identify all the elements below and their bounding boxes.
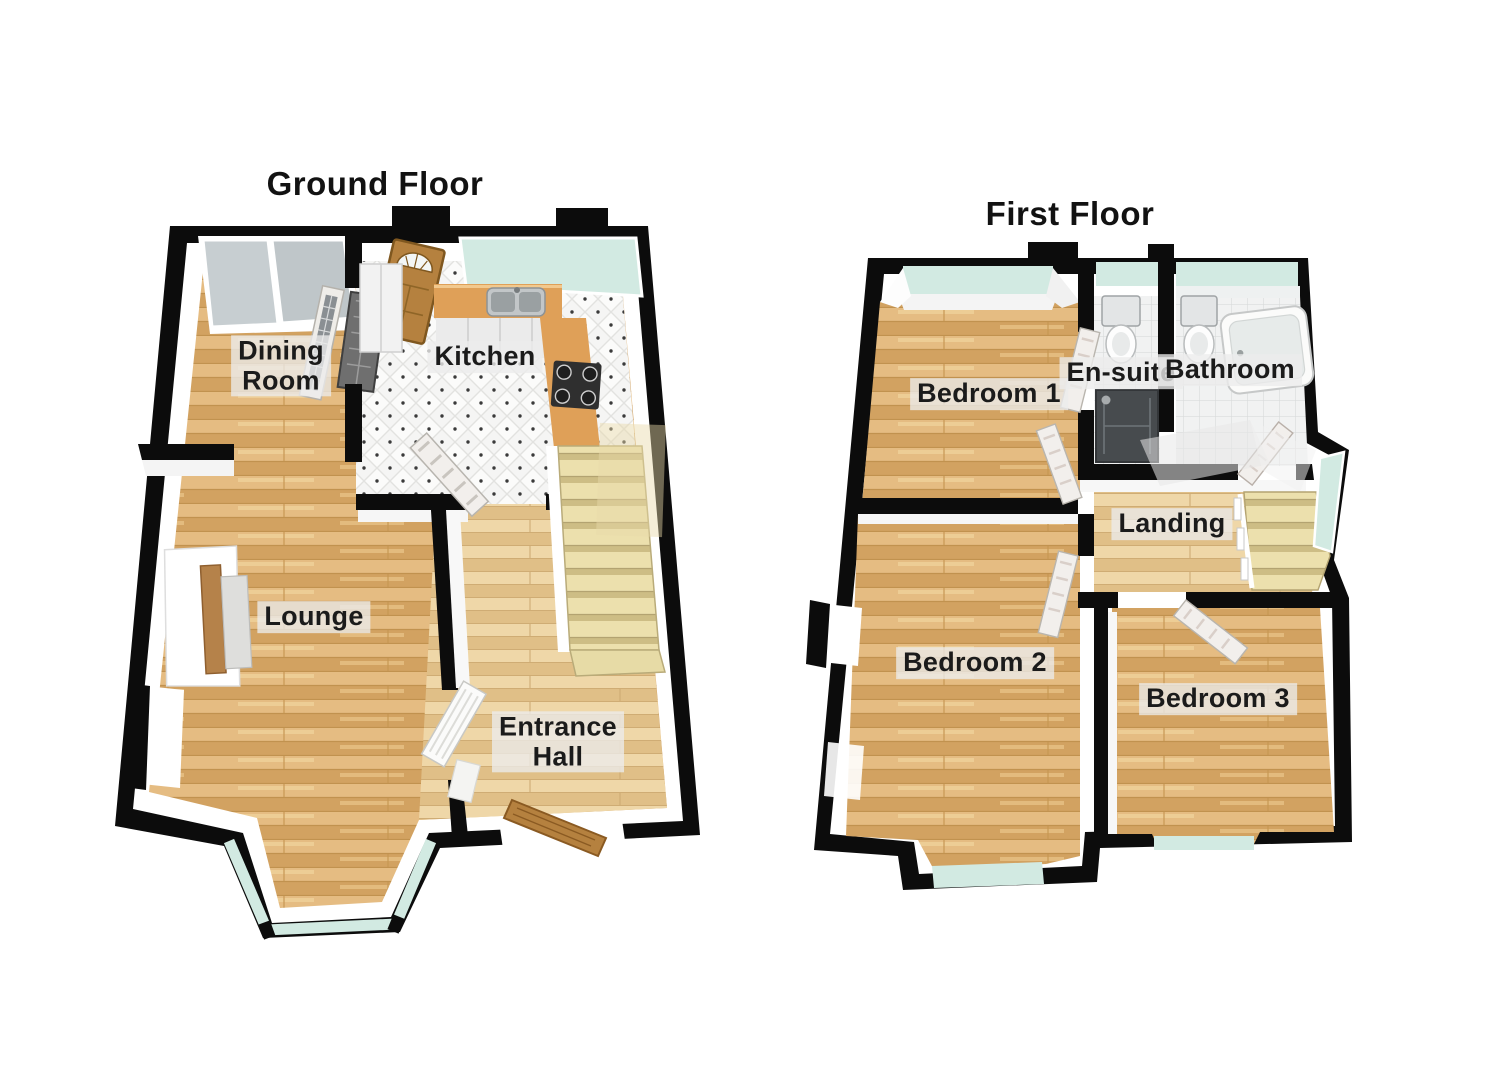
ground-floor-plan [115,206,700,940]
bedroom3-window [1154,836,1254,850]
bedroom2-bedroom3-wall-face [1108,612,1117,834]
stairs-upper-ghost [596,423,666,537]
room-label-bedroom1: Bedroom 1 [910,378,1068,410]
baluster [1234,498,1241,520]
bedroom2-landing-wall [1078,514,1094,556]
room-label-landing: Landing [1111,508,1232,540]
dining-lounge-wall-stub [138,444,234,460]
patio-window-pane [272,240,354,323]
bedroom2-wall-notch-outer [806,600,830,668]
room-label-dining: Dining Room [231,335,331,396]
landing-south-wall [1186,592,1348,608]
bedroom1-bedroom2-wall-face [858,514,1078,524]
room-label-entrance-hall: Entrance Hall [492,711,624,772]
landing-north-wall-face [1080,480,1306,492]
room-label-kitchen: Kitchen [427,341,542,373]
bedroom1-window-sill [898,294,1058,310]
ensuite-bathroom-wall [1158,258,1174,432]
hearth [221,575,252,668]
room-label-bedroom3: Bedroom 3 [1139,683,1297,715]
bedroom1-ensuite-wall [1078,258,1094,332]
patio-window-pane [203,240,278,327]
first-floor-plan [806,242,1352,890]
dining-lounge-wall-face [142,460,234,476]
dining-kitchen-wall [345,384,362,462]
baluster [1237,528,1244,550]
ground-floor-title: Ground Floor [267,165,484,203]
room-label-lounge: Lounge [257,601,370,633]
baluster [1241,558,1248,580]
room-label-bedroom2: Bedroom 2 [896,647,1054,679]
first-floor-title: First Floor [986,195,1155,233]
floorplan-drawing [0,0,1485,1080]
bedroom1-window [880,266,1080,310]
bedroom2-wall-step [824,742,864,800]
ensuite-window [1096,262,1158,286]
room-label-bathroom: Bathroom [1158,354,1302,386]
kitchen-sink [487,287,545,316]
bathroom-window [1176,262,1298,286]
bedroom2-bedroom3-wall [1094,608,1108,836]
stairs-ground [546,423,666,676]
landing-south-wall [1078,592,1118,608]
bedroom2-floor [846,514,1080,870]
hob [551,360,602,409]
bedroom2-window [932,862,1044,888]
kitchen-hall-wall [356,494,470,510]
stairs-bottom-step [570,650,665,676]
floorplan-canvas: Ground Floor First Floor Dining Room Kit… [0,0,1485,1080]
bedroom1-bedroom2-wall [854,498,1078,514]
